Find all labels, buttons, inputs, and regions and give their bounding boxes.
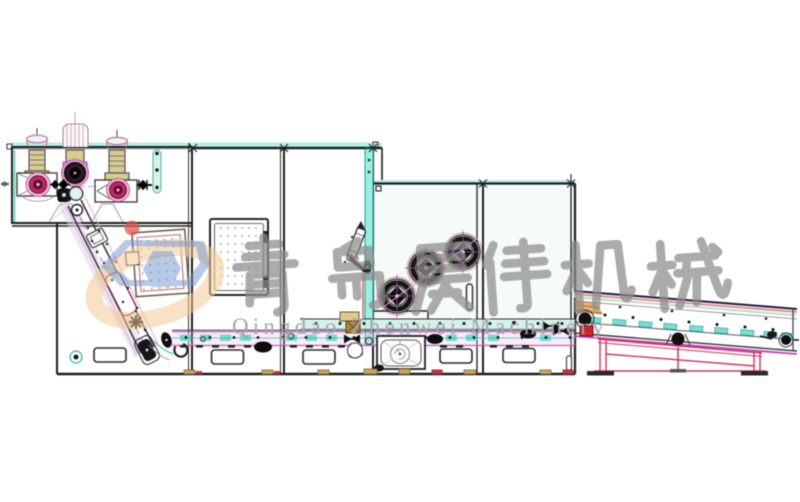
svg-text:Qingdao Zhenwei Machinery: Qingdao Zhenwei Machinery [232,314,608,339]
